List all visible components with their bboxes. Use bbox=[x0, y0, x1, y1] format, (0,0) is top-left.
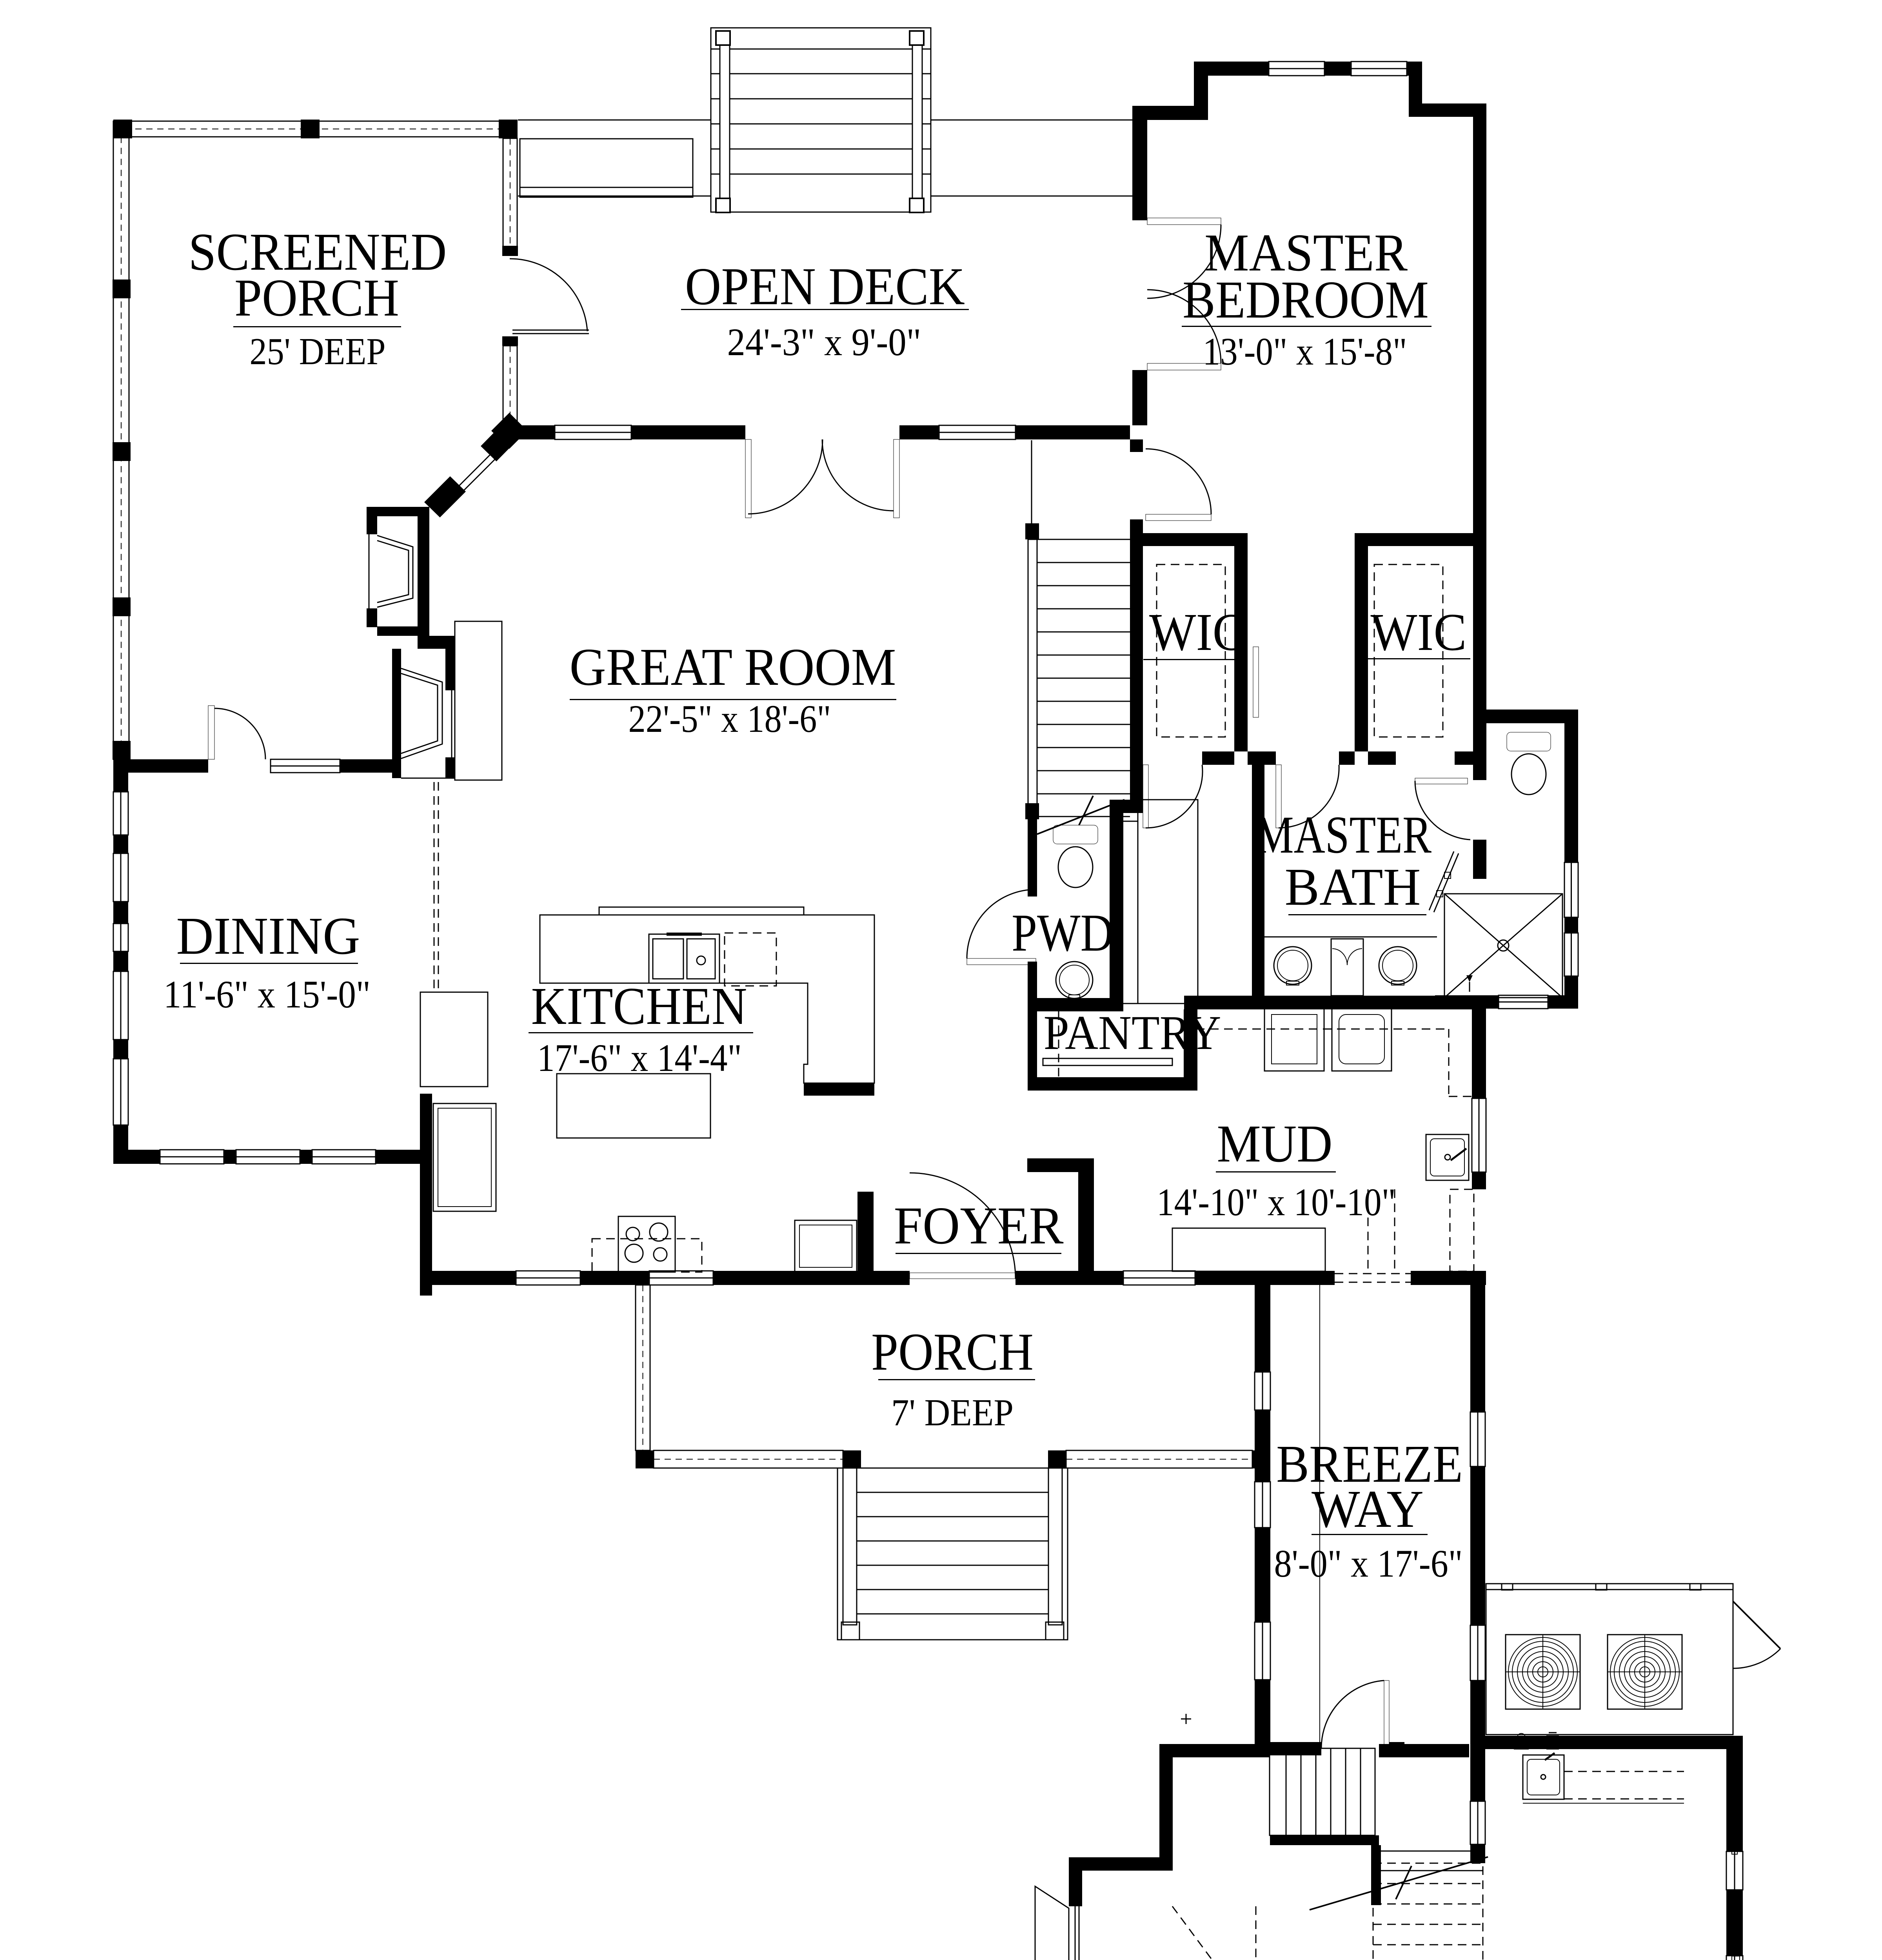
svg-text:WIC: WIC bbox=[1149, 603, 1246, 662]
svg-text:8'-0" x 17'-6": 8'-0" x 17'-6" bbox=[1274, 1542, 1463, 1585]
svg-text:PANTRY: PANTRY bbox=[1044, 1006, 1221, 1060]
svg-text:17'-6" x 14'-4": 17'-6" x 14'-4" bbox=[537, 1036, 742, 1080]
svg-text:25' DEEP: 25' DEEP bbox=[250, 330, 386, 373]
svg-text:OPEN DECK: OPEN DECK bbox=[685, 257, 965, 316]
svg-text:11'-6" x 15'-0": 11'-6" x 15'-0" bbox=[163, 973, 371, 1016]
svg-text:24'-3" x 9'-0": 24'-3" x 9'-0" bbox=[727, 320, 921, 364]
svg-text:PORCH: PORCH bbox=[234, 269, 399, 327]
svg-text:PWD: PWD bbox=[1012, 904, 1114, 962]
svg-text:KITCHEN: KITCHEN bbox=[531, 977, 747, 1036]
svg-text:14'-10" x 10'-10": 14'-10" x 10'-10" bbox=[1157, 1180, 1396, 1224]
svg-text:BEDROOM: BEDROOM bbox=[1183, 270, 1429, 329]
svg-text:13'-0" x 15'-8": 13'-0" x 15'-8" bbox=[1203, 330, 1407, 373]
svg-text:MUD: MUD bbox=[1217, 1114, 1333, 1173]
svg-text:MASTER: MASTER bbox=[1255, 806, 1431, 864]
svg-text:FOYER: FOYER bbox=[894, 1196, 1064, 1255]
svg-text:DINING: DINING bbox=[176, 907, 360, 965]
svg-text:GREAT ROOM: GREAT ROOM bbox=[570, 638, 896, 697]
svg-text:7' DEEP: 7' DEEP bbox=[891, 1392, 1014, 1434]
svg-text:BATH: BATH bbox=[1285, 858, 1421, 916]
svg-text:WIC: WIC bbox=[1371, 603, 1467, 662]
svg-text:WAY: WAY bbox=[1312, 1480, 1424, 1539]
svg-text:PORCH: PORCH bbox=[871, 1323, 1034, 1381]
svg-text:22'-5" x 18'-6": 22'-5" x 18'-6" bbox=[629, 697, 831, 740]
